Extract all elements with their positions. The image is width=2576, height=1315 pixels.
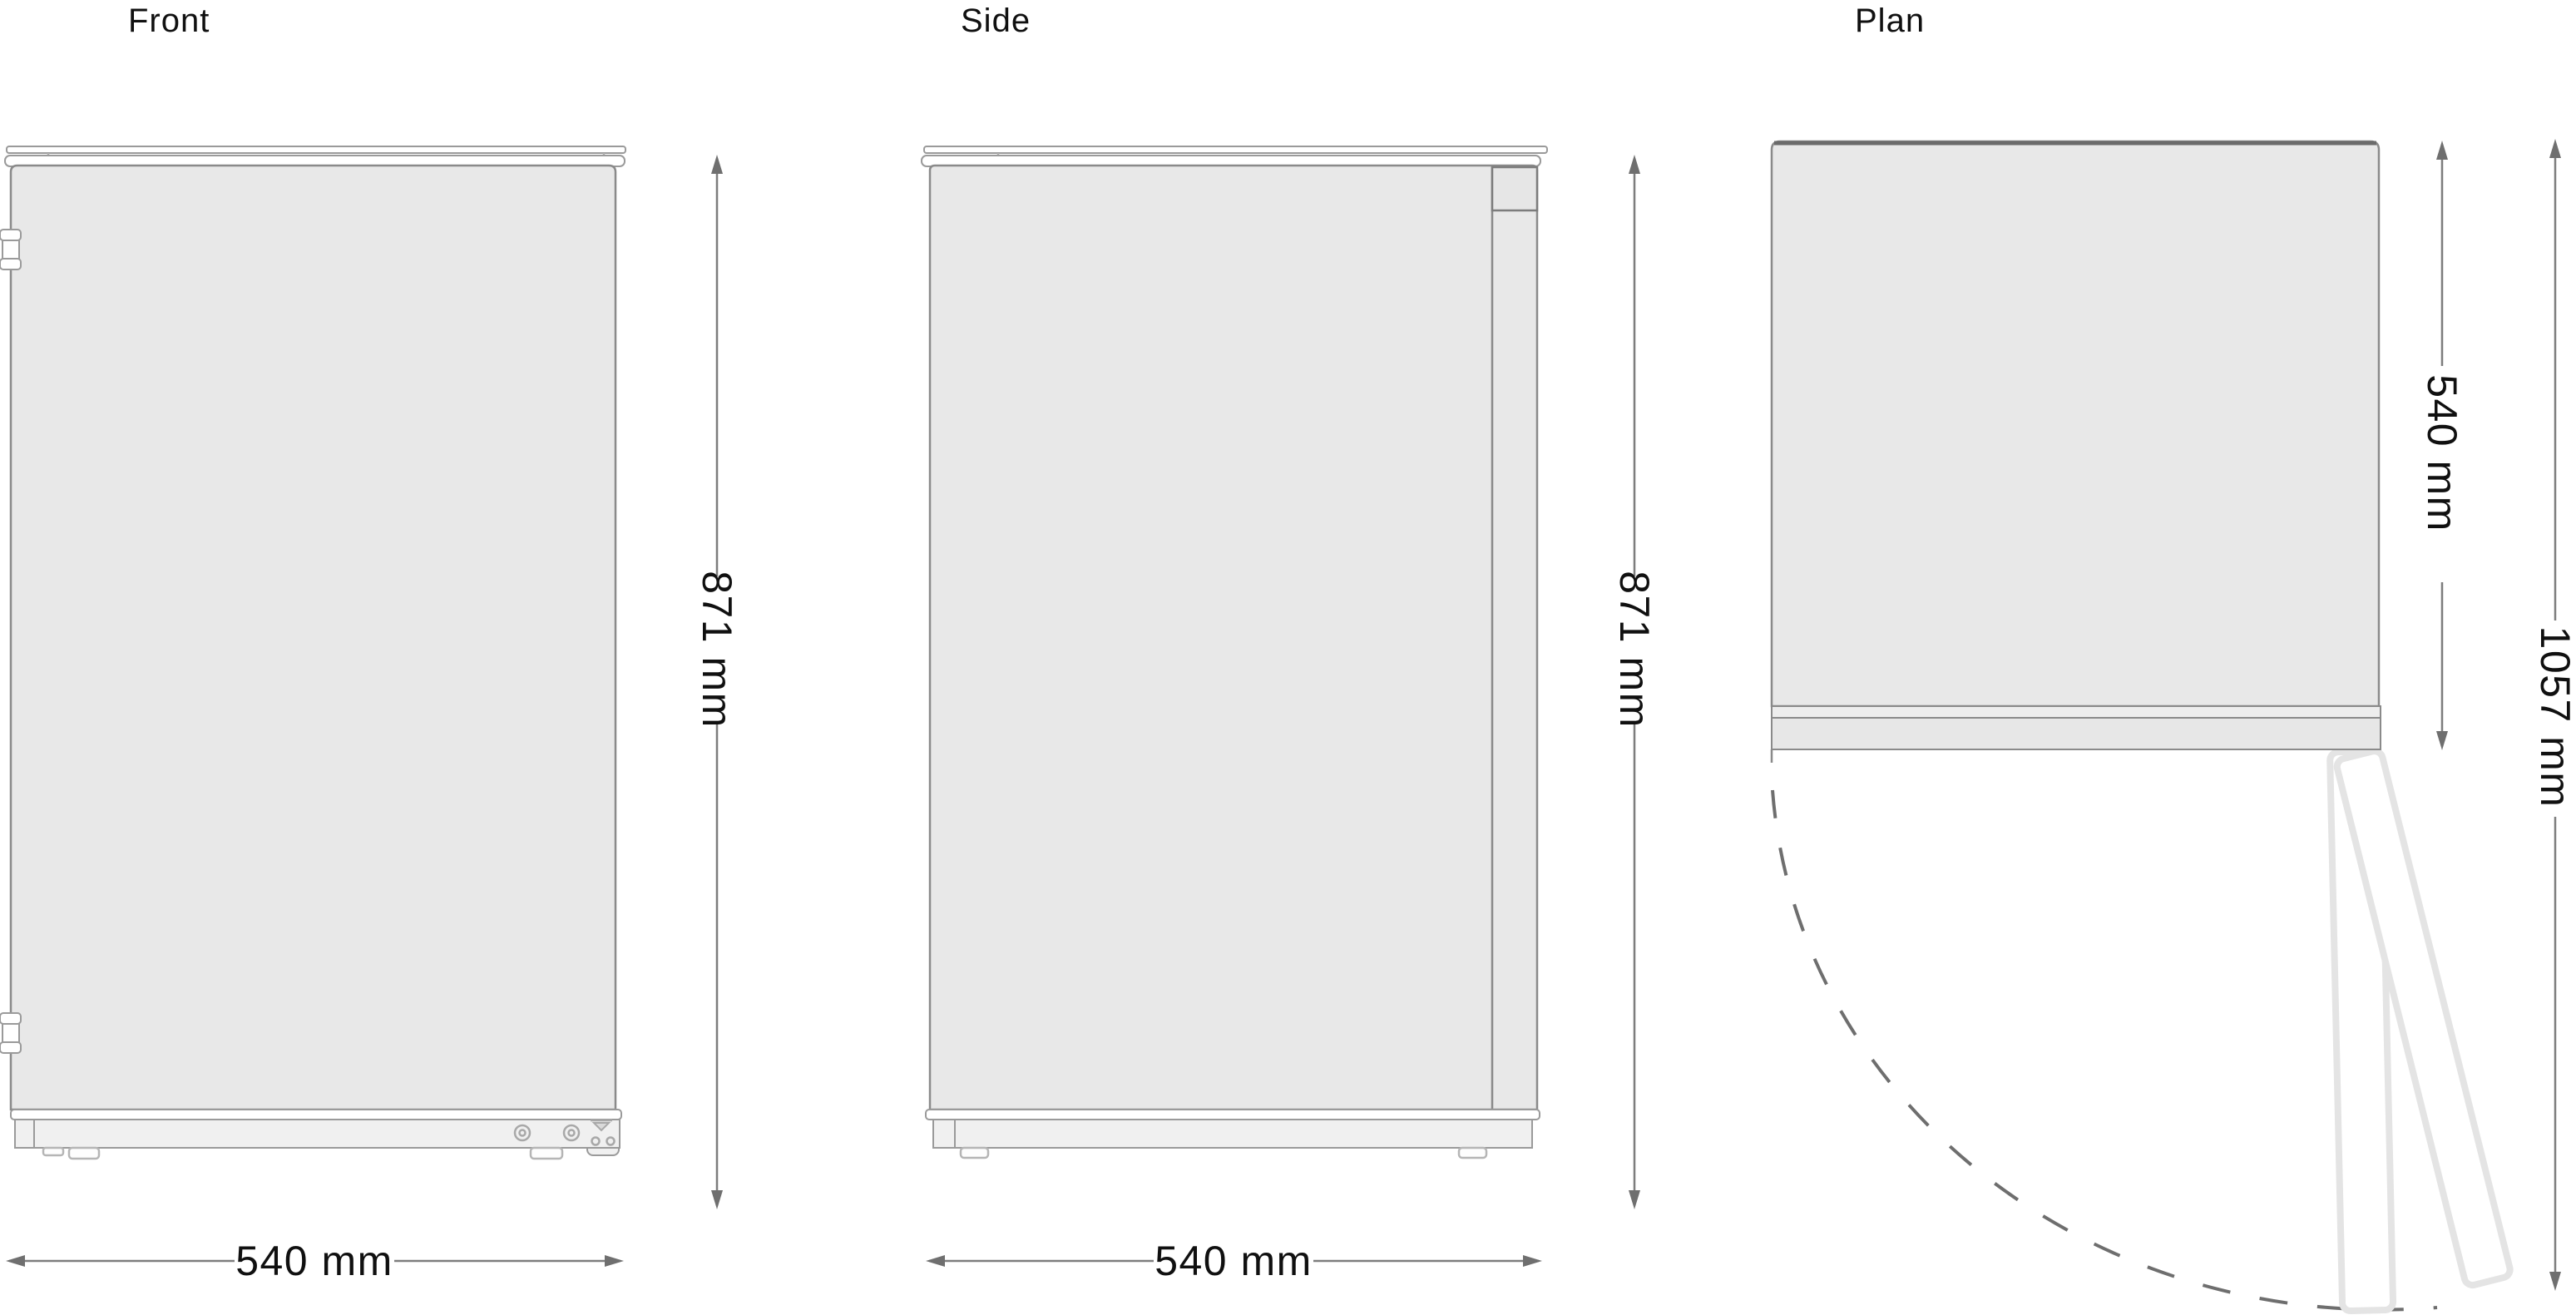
side-depth-arrow-right xyxy=(1523,1255,1542,1267)
front-height-dim-label: 871 mm xyxy=(694,571,740,729)
side-top-trim-strip xyxy=(924,146,1547,153)
plan-swing-dim-label: 1057 mm xyxy=(2532,626,2576,808)
front-width-dimension: 540 mm xyxy=(6,1238,624,1284)
side-foot-front xyxy=(961,1148,988,1158)
front-width-dim-label: 540 mm xyxy=(235,1238,393,1284)
front-height-arrow-up xyxy=(711,155,723,174)
front-hinge-bottom-cap-lower xyxy=(0,1042,21,1053)
front-view-title: Front xyxy=(128,2,210,39)
front-width-arrow-left xyxy=(6,1255,25,1267)
front-hinge-top xyxy=(0,230,21,269)
front-hinge-bottom-pad xyxy=(2,1021,19,1045)
front-hinge-bottom xyxy=(0,1013,21,1053)
front-hinge-top-cap-lower xyxy=(0,259,21,269)
front-foot-left-small xyxy=(43,1148,63,1155)
side-view-title: Side xyxy=(961,2,1031,39)
plan-view: Plan 540 mm 1057 mm xyxy=(1772,2,2576,1311)
side-height-dimension: 871 mm xyxy=(1611,155,1658,1209)
side-foot-back xyxy=(1459,1148,1486,1158)
side-depth-arrow-left xyxy=(926,1255,945,1267)
plan-depth-dimension: 540 mm xyxy=(2419,141,2465,750)
front-hinge-bottom-cap-upper xyxy=(0,1013,21,1024)
side-depth-dimension: 540 mm xyxy=(926,1238,1542,1284)
front-foot-left xyxy=(69,1148,99,1159)
side-height-arrow-up xyxy=(1629,155,1640,174)
plan-swing-arrow-up xyxy=(2549,139,2561,158)
side-kick-strip xyxy=(926,1110,1540,1120)
plan-door-front-band xyxy=(1772,718,2381,749)
plan-door-gap-strip xyxy=(1772,706,2381,718)
front-height-arrow-down xyxy=(711,1190,723,1209)
plan-depth-dim-label: 540 mm xyxy=(2419,374,2465,532)
side-height-arrow-down xyxy=(1629,1190,1640,1209)
front-top-trim-strip xyxy=(7,146,625,153)
drawing-svg: Front xyxy=(0,0,2576,1315)
side-hinge-box xyxy=(1492,167,1537,210)
side-depth-dim-label: 540 mm xyxy=(1155,1238,1313,1284)
plan-swing-arrow-down xyxy=(2549,1272,2561,1291)
side-height-dim-label: 871 mm xyxy=(1611,571,1658,729)
plan-view-title: Plan xyxy=(1855,2,1925,39)
front-door-panel xyxy=(11,166,616,1110)
side-body-panel xyxy=(930,166,1537,1110)
side-view: Side 871 mm 540 mm xyxy=(922,2,1658,1284)
plan-door-swing-dimension: 1057 mm xyxy=(2532,139,2576,1291)
front-hinge-top-pad xyxy=(2,238,19,261)
front-width-arrow-right xyxy=(605,1255,624,1267)
front-hinge-top-cap-upper xyxy=(0,230,21,240)
front-kick-strip xyxy=(11,1110,621,1120)
side-base-band xyxy=(933,1120,1532,1148)
front-height-dimension: 871 mm xyxy=(694,155,740,1209)
front-foot-right xyxy=(531,1148,562,1159)
plan-depth-arrow-up xyxy=(2436,141,2448,160)
front-view: Front xyxy=(0,2,740,1284)
appliance-dimension-drawing: Front xyxy=(0,0,2576,1315)
plan-body xyxy=(1772,141,2379,706)
plan-depth-arrow-down xyxy=(2436,731,2448,750)
